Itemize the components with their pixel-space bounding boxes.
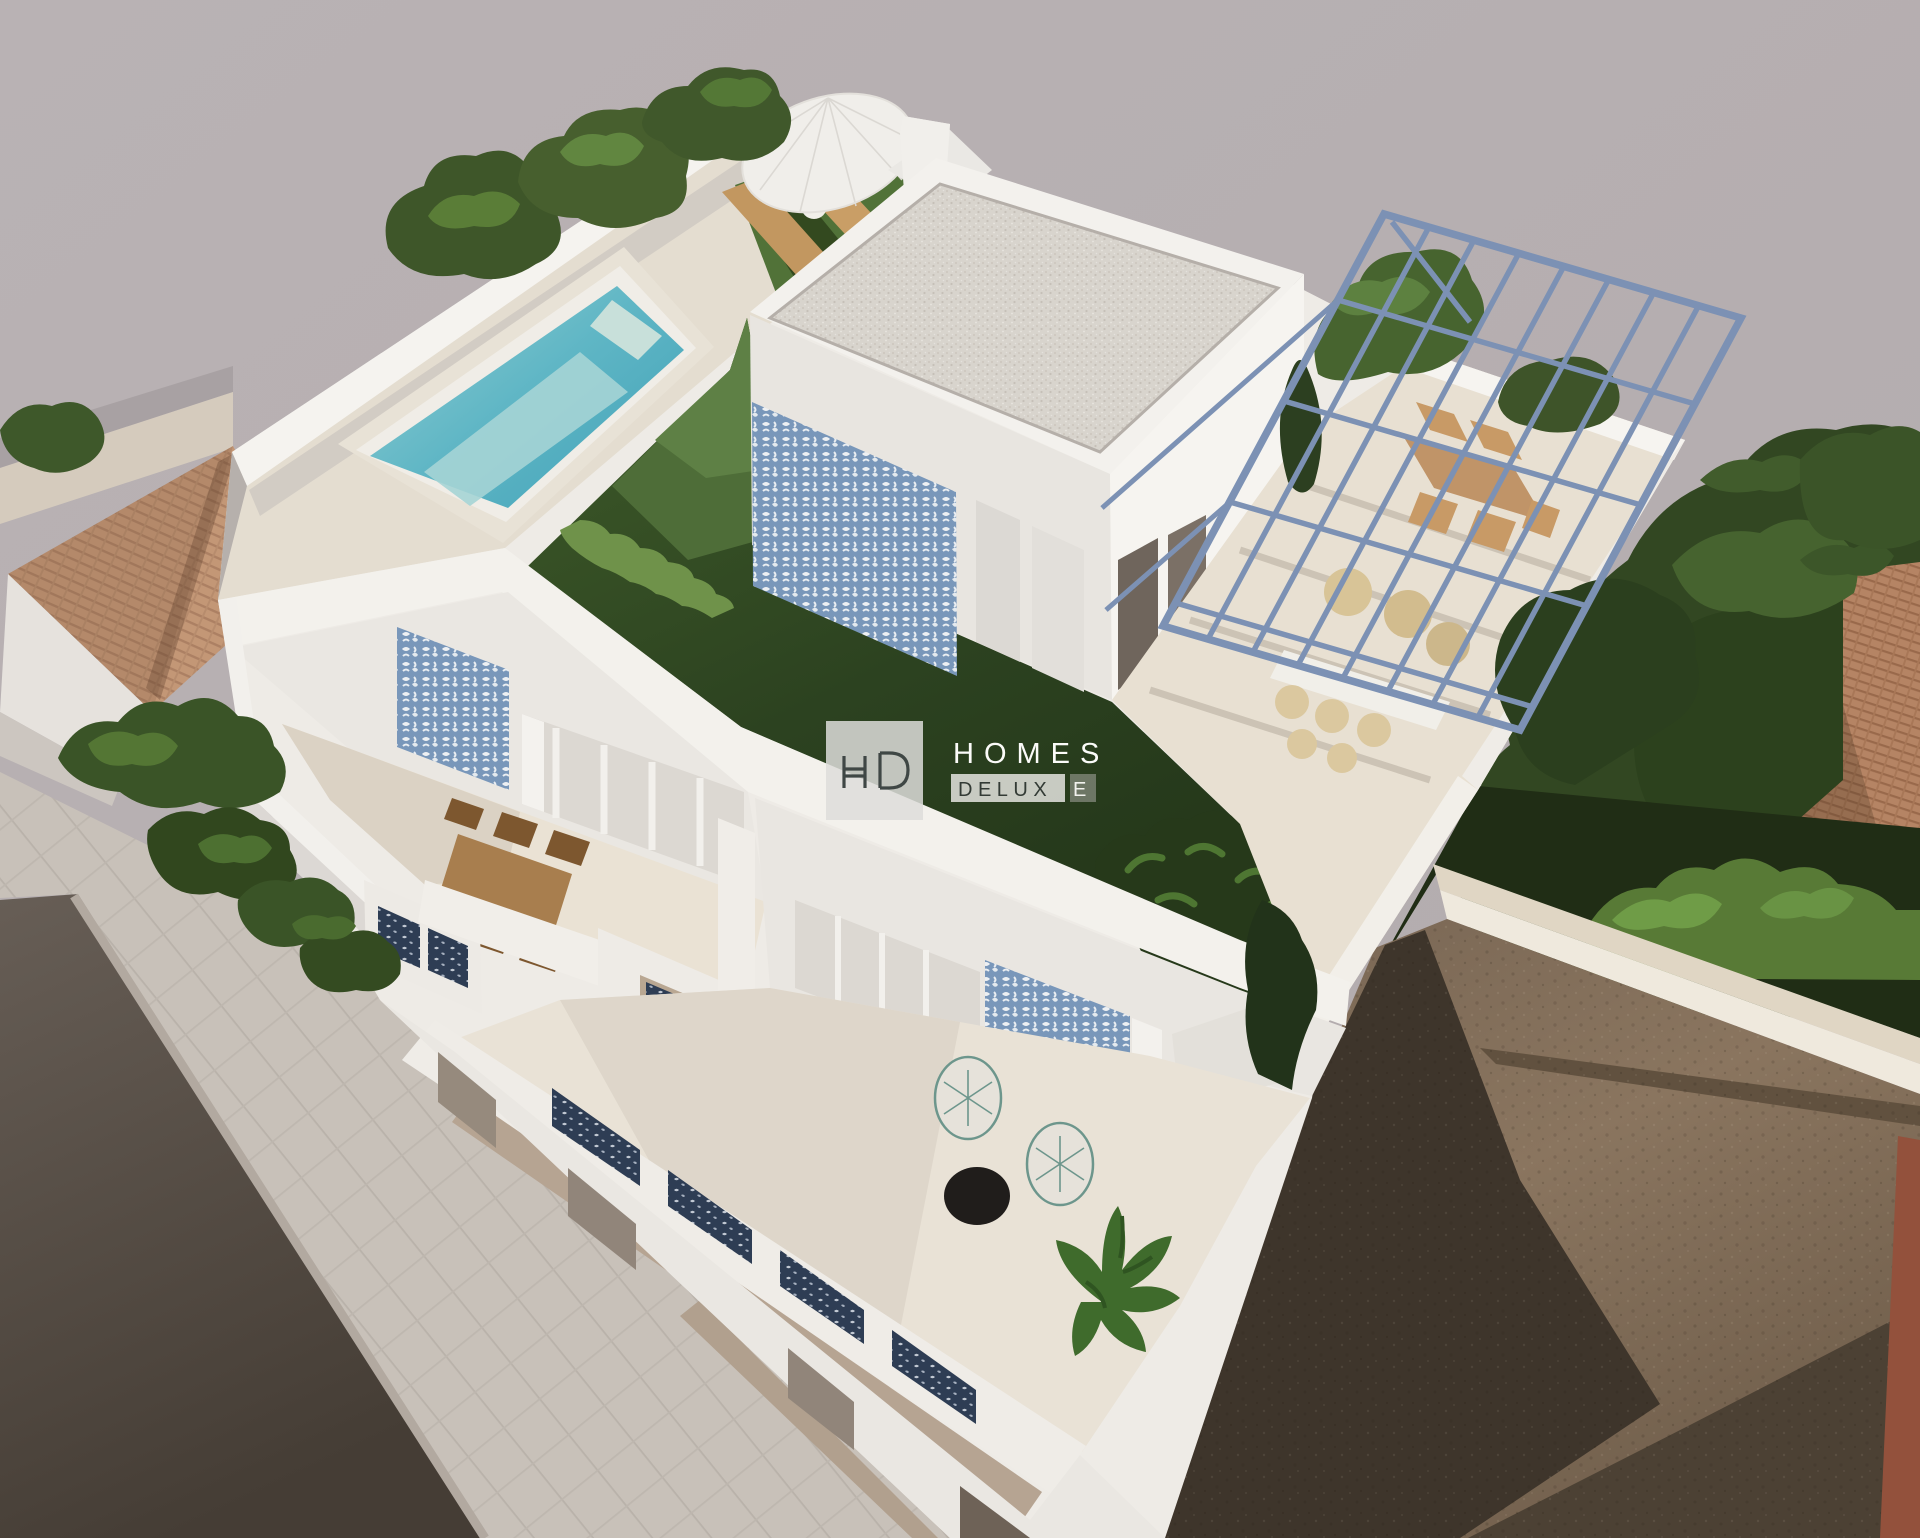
svg-text:E: E: [1073, 779, 1086, 801]
svg-text:DELUX: DELUX: [958, 779, 1052, 801]
svg-text:HOMES: HOMES: [953, 738, 1109, 770]
